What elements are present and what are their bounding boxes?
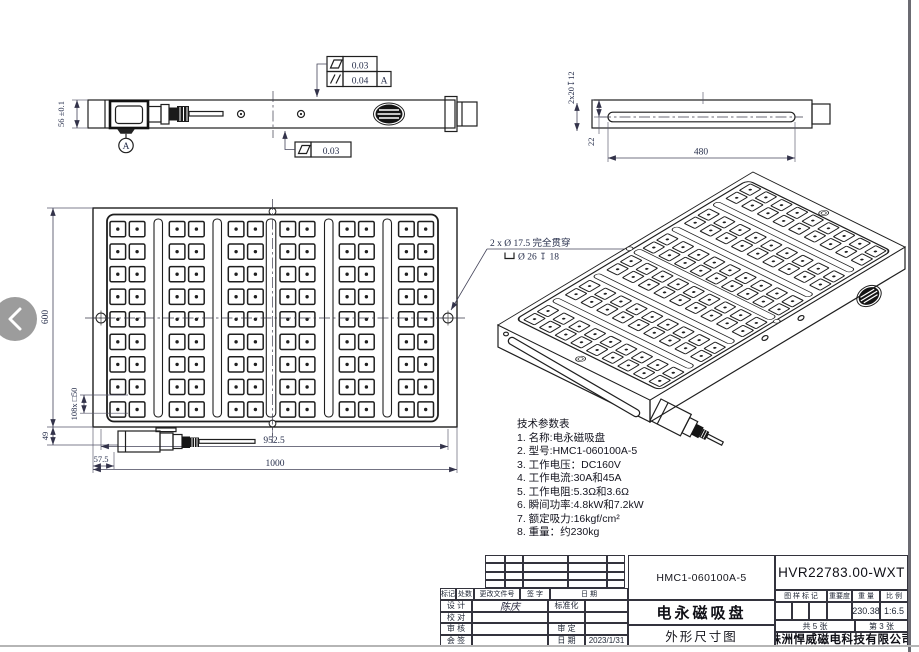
revision-header-count: 处数 [456, 588, 474, 600]
company-name: 株洲悍威磁电科技有限公司 [775, 632, 908, 646]
tech-params-title: 技术参数表 [517, 418, 644, 432]
revision-cell-empty [607, 572, 625, 580]
tech-param-line: 5. 工作电阻:5.3Ω和3.6Ω [517, 486, 644, 500]
tech-params-block: 技术参数表 1. 名称:电永磁吸盘 2. 型号:HMC1-060100A-5 3… [517, 418, 644, 540]
scale-value: 1:6.5 [880, 602, 908, 620]
sig-label-approve: 审 定 [548, 623, 585, 635]
revision-cell-empty [485, 563, 505, 571]
hole-callout-line2: Ø 26 ↧ 18 [518, 253, 559, 263]
revision-cell-empty [568, 580, 607, 588]
dim-1000: 1000 [266, 459, 285, 469]
sheet-number: 第 3 张 [855, 620, 908, 632]
flatness-icon [299, 146, 311, 154]
sig-label-review: 审 核 [440, 623, 472, 635]
fcf-parallel-datum: A [381, 76, 388, 86]
tech-param-line: 8. 重量：约230kg [517, 526, 644, 540]
stamp-header-mark: 图 样 标 记 [775, 590, 827, 602]
iso-view [498, 172, 905, 454]
fcf-bottom-value: 0.03 [323, 147, 340, 157]
fcf-bottom: 0.03 [285, 131, 351, 157]
dim-600: 600 [41, 310, 51, 325]
dim-pole: 108x □50 [69, 388, 79, 421]
revision-header-mark: 标记 [440, 588, 456, 600]
sig-value-review [472, 623, 548, 635]
parallelism-icon [331, 75, 341, 84]
drawing-viewer: A 56 ±0.1 0.03 [0, 0, 919, 652]
slot-callout: 2x20↧12 [566, 71, 576, 104]
stamp-header-weight: 重 量 [852, 590, 880, 602]
fcf-parallel-value: 0.04 [352, 76, 369, 86]
tech-param-line: 4. 工作电流:30A和45A [517, 472, 644, 486]
product-name: 电永磁吸盘 [628, 600, 775, 625]
stamp-header-importance: 重要度 [827, 590, 852, 602]
revision-cell-empty [568, 555, 607, 563]
dim-57-5: 57.5 [94, 454, 109, 464]
counterbore-icon [505, 253, 514, 259]
dim-480: 480 [694, 148, 709, 158]
revision-cell-empty [568, 572, 607, 580]
importance-value [827, 602, 852, 620]
stamp-cell-empty [792, 602, 809, 620]
dim-22: 22 [586, 138, 596, 147]
revision-cell-empty [505, 572, 523, 580]
stamp-cell-empty [775, 602, 792, 620]
iso-connector [650, 399, 728, 454]
revision-cell-empty [523, 555, 568, 563]
dim-952-5: 952.5 [263, 436, 285, 446]
sig-value-approve [585, 623, 628, 635]
sig-value-standardize [585, 600, 628, 612]
sig-label-design: 设 计 [440, 600, 472, 612]
weight-value: 230.38 [852, 602, 880, 620]
revision-cell-empty [568, 563, 607, 571]
revision-cell-empty [523, 580, 568, 588]
revision-cell-empty [485, 555, 505, 563]
drawing-type: 外形尺寸图 [628, 625, 775, 646]
tech-param-line: 1. 名称:电永磁吸盘 [517, 432, 644, 446]
fcf-flatness-value: 0.03 [352, 61, 369, 71]
previous-image-button[interactable] [0, 297, 37, 341]
revision-table [485, 555, 625, 588]
sig-label-check: 校 对 [440, 612, 472, 624]
revision-header-docno: 更改文件号 [474, 588, 520, 600]
revision-header-date: 日 期 [550, 588, 628, 600]
revision-cell-empty [523, 563, 568, 571]
front-connector [118, 428, 255, 452]
model-number: HMC1-060100A-5 [628, 555, 775, 600]
viewer-right-edge [908, 0, 911, 652]
dim-56: 56 ±0.1 [56, 101, 66, 127]
front-view [93, 208, 457, 427]
revision-cell-empty [607, 555, 625, 563]
revision-cell-empty [607, 580, 625, 588]
sig-label-standardize: 标准化 [548, 600, 585, 612]
revision-cell-empty [485, 572, 505, 580]
tech-param-line: 3. 工作电压：DC160V [517, 459, 644, 473]
datum-flag [117, 129, 135, 134]
side-view-right: 480 22 2x20↧12 [566, 71, 830, 162]
revision-cell-empty [505, 580, 523, 588]
tech-param-line: 7. 额定吸力:16kgf/cm² [517, 513, 644, 527]
title-block: 标记 处数 更改文件号 签 字 日 期 设 计 陈庆 标准化 校 对 审 核 审… [440, 555, 908, 646]
chevron-left-icon [0, 297, 37, 341]
stamp-header-scale: 比 例 [880, 590, 908, 602]
sig-value-design: 陈庆 [472, 600, 548, 612]
sig-value-check [472, 612, 548, 624]
revision-cell-empty [485, 580, 505, 588]
revision-cell-empty [523, 572, 568, 580]
revision-cell-empty [607, 563, 625, 571]
revision-cell-empty [505, 555, 523, 563]
sheet-total: 共 5 张 [775, 620, 855, 632]
datum-a-label: A [123, 142, 130, 152]
sig-value-blank [585, 612, 628, 624]
fcf-top: 0.03 0.04 A [317, 57, 391, 98]
tech-param-line: 2. 型号:HMC1-060100A-5 [517, 445, 644, 459]
sig-label-blank [548, 612, 585, 624]
revision-cell-empty [505, 563, 523, 571]
viewer-bottom-edge [0, 645, 919, 647]
stamp-cell-empty [809, 602, 827, 620]
flatness-icon [331, 60, 343, 68]
dim-49: 49 [40, 432, 50, 441]
drawing-number: HVR22783.00-WXT [775, 555, 908, 590]
hole-callout-line1: 2 x Ø 17.5 完全贯穿 [490, 237, 571, 249]
revision-header-sign: 签 字 [520, 588, 550, 600]
side-view-left: A 56 ±0.1 0.03 [56, 57, 477, 158]
tech-param-line: 6. 瞬间功率:4.8kW和7.2kW [517, 499, 644, 513]
iso-side-knob [853, 281, 885, 311]
